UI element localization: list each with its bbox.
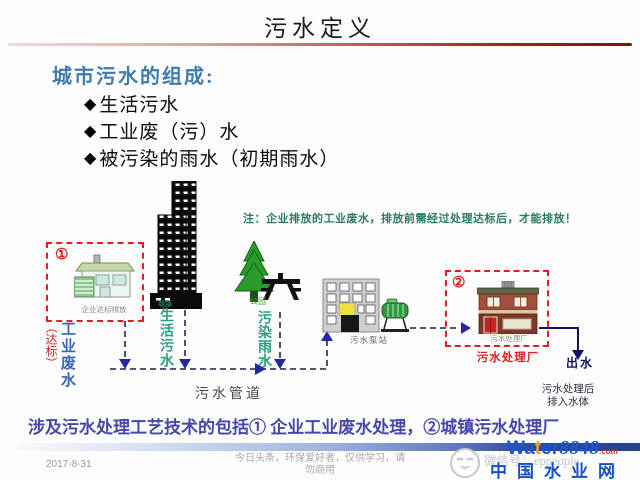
conclusion-text: 涉及污水处理工艺技术的包括① 企业工业废水处理，②城镇污水处理厂 — [28, 413, 630, 438]
title-divider — [8, 43, 632, 46]
park-caption: 公园 — [250, 296, 266, 307]
treatment-plant-caption: 污水处理厂 — [480, 333, 538, 344]
diamond-bullet-icon: ◆ — [84, 121, 96, 141]
site-name-watermark: 中国水业网 — [490, 457, 625, 480]
pump-station-caption: 污水泵站 — [334, 334, 404, 346]
polluted-rain-label: 污染雨水 — [255, 310, 271, 368]
pump-station-icon — [322, 278, 380, 333]
list-item: ◆ 生活污水 — [84, 90, 339, 117]
disclaimer-line1: 今日头条，环保爱好者，仅供学习，请 — [200, 453, 440, 465]
bullet-list: ◆ 生活污水 ◆ 工业废（污）水 ◆ 被污染的雨水（初期雨水） — [84, 90, 339, 171]
note-text: 注：企业排放的工业废水，排放前需经过处理达标后，才能排放！ — [243, 210, 577, 226]
footer-date: 2017-8-31 — [46, 459, 92, 470]
circled-number-2: ② — [452, 273, 465, 292]
outflow-note-line2: 排入水体 — [527, 396, 609, 409]
smiley-icon — [449, 447, 481, 479]
circled-number-1: ① — [55, 245, 68, 264]
industrial-wastewater-label: （达标） 工业废水 — [44, 321, 76, 389]
skyscraper-icon — [150, 181, 202, 309]
brand-part: Wa — [507, 438, 535, 459]
brand-com: .com — [599, 447, 618, 456]
disclaimer-line2: 勿商用 — [200, 465, 440, 477]
list-item: ◆ 被污染的雨水（初期雨水） — [84, 144, 339, 171]
domestic-sewage-label: 生活污水 — [157, 308, 173, 368]
brand-part: er — [541, 438, 559, 459]
qualifier-text: （达标） — [44, 321, 58, 389]
bullet-text: 被污染的雨水（初期雨水） — [99, 144, 339, 171]
list-item: ◆ 工业废（污）水 — [84, 117, 339, 144]
outflow-note-line1: 污水处理后 — [527, 383, 609, 396]
outflow-note: 污水处理后 排入水体 — [527, 383, 609, 409]
storage-tank-icon — [379, 297, 411, 333]
treatment-plant-label: 污水处理厂 — [476, 349, 540, 365]
diamond-bullet-icon: ◆ — [84, 94, 96, 114]
bullet-text: 工业废（污）水 — [99, 117, 239, 144]
footer-disclaimer: 今日头条，环保爱好者，仅供学习，请 勿商用 — [200, 453, 440, 477]
bullet-text: 生活污水 — [99, 90, 179, 117]
factory-icon — [74, 251, 136, 303]
slide: 污水定义 城市污水的组成: ◆ 生活污水 ◆ 工业废（污）水 ◆ 被污染的雨水（… — [0, 0, 640, 480]
outflow-label: 出水 — [566, 354, 594, 371]
section-heading: 城市污水的组成: — [52, 60, 215, 89]
sewage-pipe-label: 污水管道 — [195, 383, 263, 403]
picnic-table-icon — [261, 273, 301, 302]
flow-text: 工业废水 — [58, 321, 76, 389]
enterprise-caption: 企业达标排放 — [64, 304, 144, 315]
brand-number: 8848 — [559, 437, 599, 459]
page-title: 污水定义 — [0, 9, 640, 43]
treatment-plant-icon — [477, 281, 539, 334]
diamond-bullet-icon: ◆ — [84, 148, 96, 168]
